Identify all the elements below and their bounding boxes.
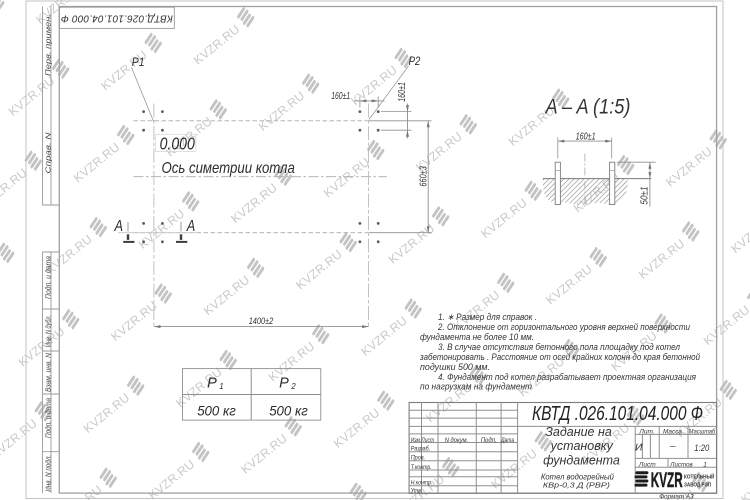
svg-text:N докум.: N докум. (445, 436, 469, 444)
svg-text:P: P (279, 375, 289, 391)
svg-text:Задание на: Задание на (545, 425, 612, 439)
svg-text:KVZR: KVZR (651, 467, 683, 492)
svg-text:Изм.Лист: Изм.Лист (411, 437, 435, 444)
svg-text:Разраб.: Разраб. (411, 445, 431, 453)
svg-text:ЗАВОД РЭП: ЗАВОД РЭП (684, 482, 711, 488)
svg-text:И: И (635, 441, 643, 453)
svg-text:Формат А3: Формат А3 (659, 493, 694, 500)
svg-text:1: 1 (219, 382, 223, 391)
svg-text:Масса: Масса (663, 429, 682, 436)
svg-text:Справ. N: Справ. N (46, 131, 53, 173)
svg-text:фундамента: фундамента (543, 453, 620, 467)
svg-text:500 кг: 500 кг (269, 403, 308, 419)
svg-text:Перв. примен.: Перв. примен. (46, 14, 53, 76)
svg-text:Дата: Дата (500, 437, 514, 444)
svg-text:подушки 500 мм.: подушки 500 мм. (420, 362, 490, 372)
svg-text:Инв. N дубл.: Инв. N дубл. (45, 315, 53, 347)
svg-text:КВТД .026.101.04.000 Ф: КВТД .026.101.04.000 Ф (532, 403, 703, 425)
svg-text:Н.контр.: Н.контр. (411, 480, 433, 487)
svg-text:3. В случае отсутствия бет: 3. В случае отсутствия бетонного пола пл… (438, 342, 680, 352)
svg-text:установку: установку (550, 439, 614, 453)
svg-text:A: A (114, 218, 123, 235)
svg-text:0.000: 0.000 (160, 133, 195, 153)
svg-text:1. ∗ Размер для справок .: 1. ∗ Размер для справок . (438, 312, 537, 322)
svg-text:КВр-0,3 Д (РВР): КВр-0,3 Д (РВР) (543, 480, 611, 489)
svg-text:A: A (186, 218, 195, 235)
svg-text:Подп.: Подп. (481, 436, 497, 444)
svg-text:1400±2: 1400±2 (249, 316, 274, 326)
svg-text:P: P (207, 375, 217, 391)
svg-text:по нагрузкам на фундамент: по нагрузкам на фундамент (420, 382, 532, 392)
svg-text:500 кг: 500 кг (197, 403, 236, 419)
svg-text:Подп. и дата: Подп. и дата (45, 256, 53, 299)
svg-text:Инв. N подл.: Инв. N подл. (45, 455, 53, 492)
svg-text:P1: P1 (132, 55, 145, 69)
svg-text:Лит.: Лит. (638, 429, 654, 436)
svg-text:забетонировать . Расстояние: забетонировать . Расстояние от осей край… (419, 352, 700, 362)
svg-text:фундамента не более 10 мм.: фундамента не более 10 мм. (420, 332, 534, 342)
svg-text:Т.контр.: Т.контр. (411, 464, 432, 471)
svg-text:P2: P2 (409, 54, 421, 68)
svg-text:Пров.: Пров. (411, 455, 426, 462)
svg-text:A – A (1:5): A – A (1:5) (544, 95, 631, 119)
svg-text:Подп. и дата: Подп. и дата (45, 398, 53, 438)
svg-text:2: 2 (290, 382, 296, 391)
svg-text:КВТД.026.101.04.000 Ф: КВТД.026.101.04.000 Ф (61, 12, 173, 23)
svg-text:160±1: 160±1 (331, 91, 350, 102)
svg-text:Ось симетрии котла: Ось симетрии котла (162, 160, 295, 177)
svg-text:1: 1 (703, 461, 707, 468)
svg-text:4. Фундамент под котел раз: 4. Фундамент под котел разрабатывает про… (438, 372, 696, 382)
svg-text:160±1: 160±1 (397, 82, 408, 102)
svg-text:–: – (669, 441, 676, 452)
svg-text:1:20: 1:20 (694, 443, 710, 454)
svg-text:Взам. инв. N: Взам. инв. N (46, 352, 53, 392)
svg-text:160±1: 160±1 (576, 132, 596, 143)
svg-text:2. Отклонение от горизонтал: 2. Отклонение от горизонтального уровня … (437, 322, 690, 332)
svg-text:50±1: 50±1 (639, 186, 651, 204)
svg-text:Масштаб: Масштаб (689, 428, 716, 436)
svg-text:КОТЕЛЬНЫЙ: КОТЕЛЬНЫЙ (684, 472, 714, 480)
svg-text:Утв.: Утв. (410, 487, 422, 494)
svg-text:660±3: 660±3 (419, 166, 430, 187)
